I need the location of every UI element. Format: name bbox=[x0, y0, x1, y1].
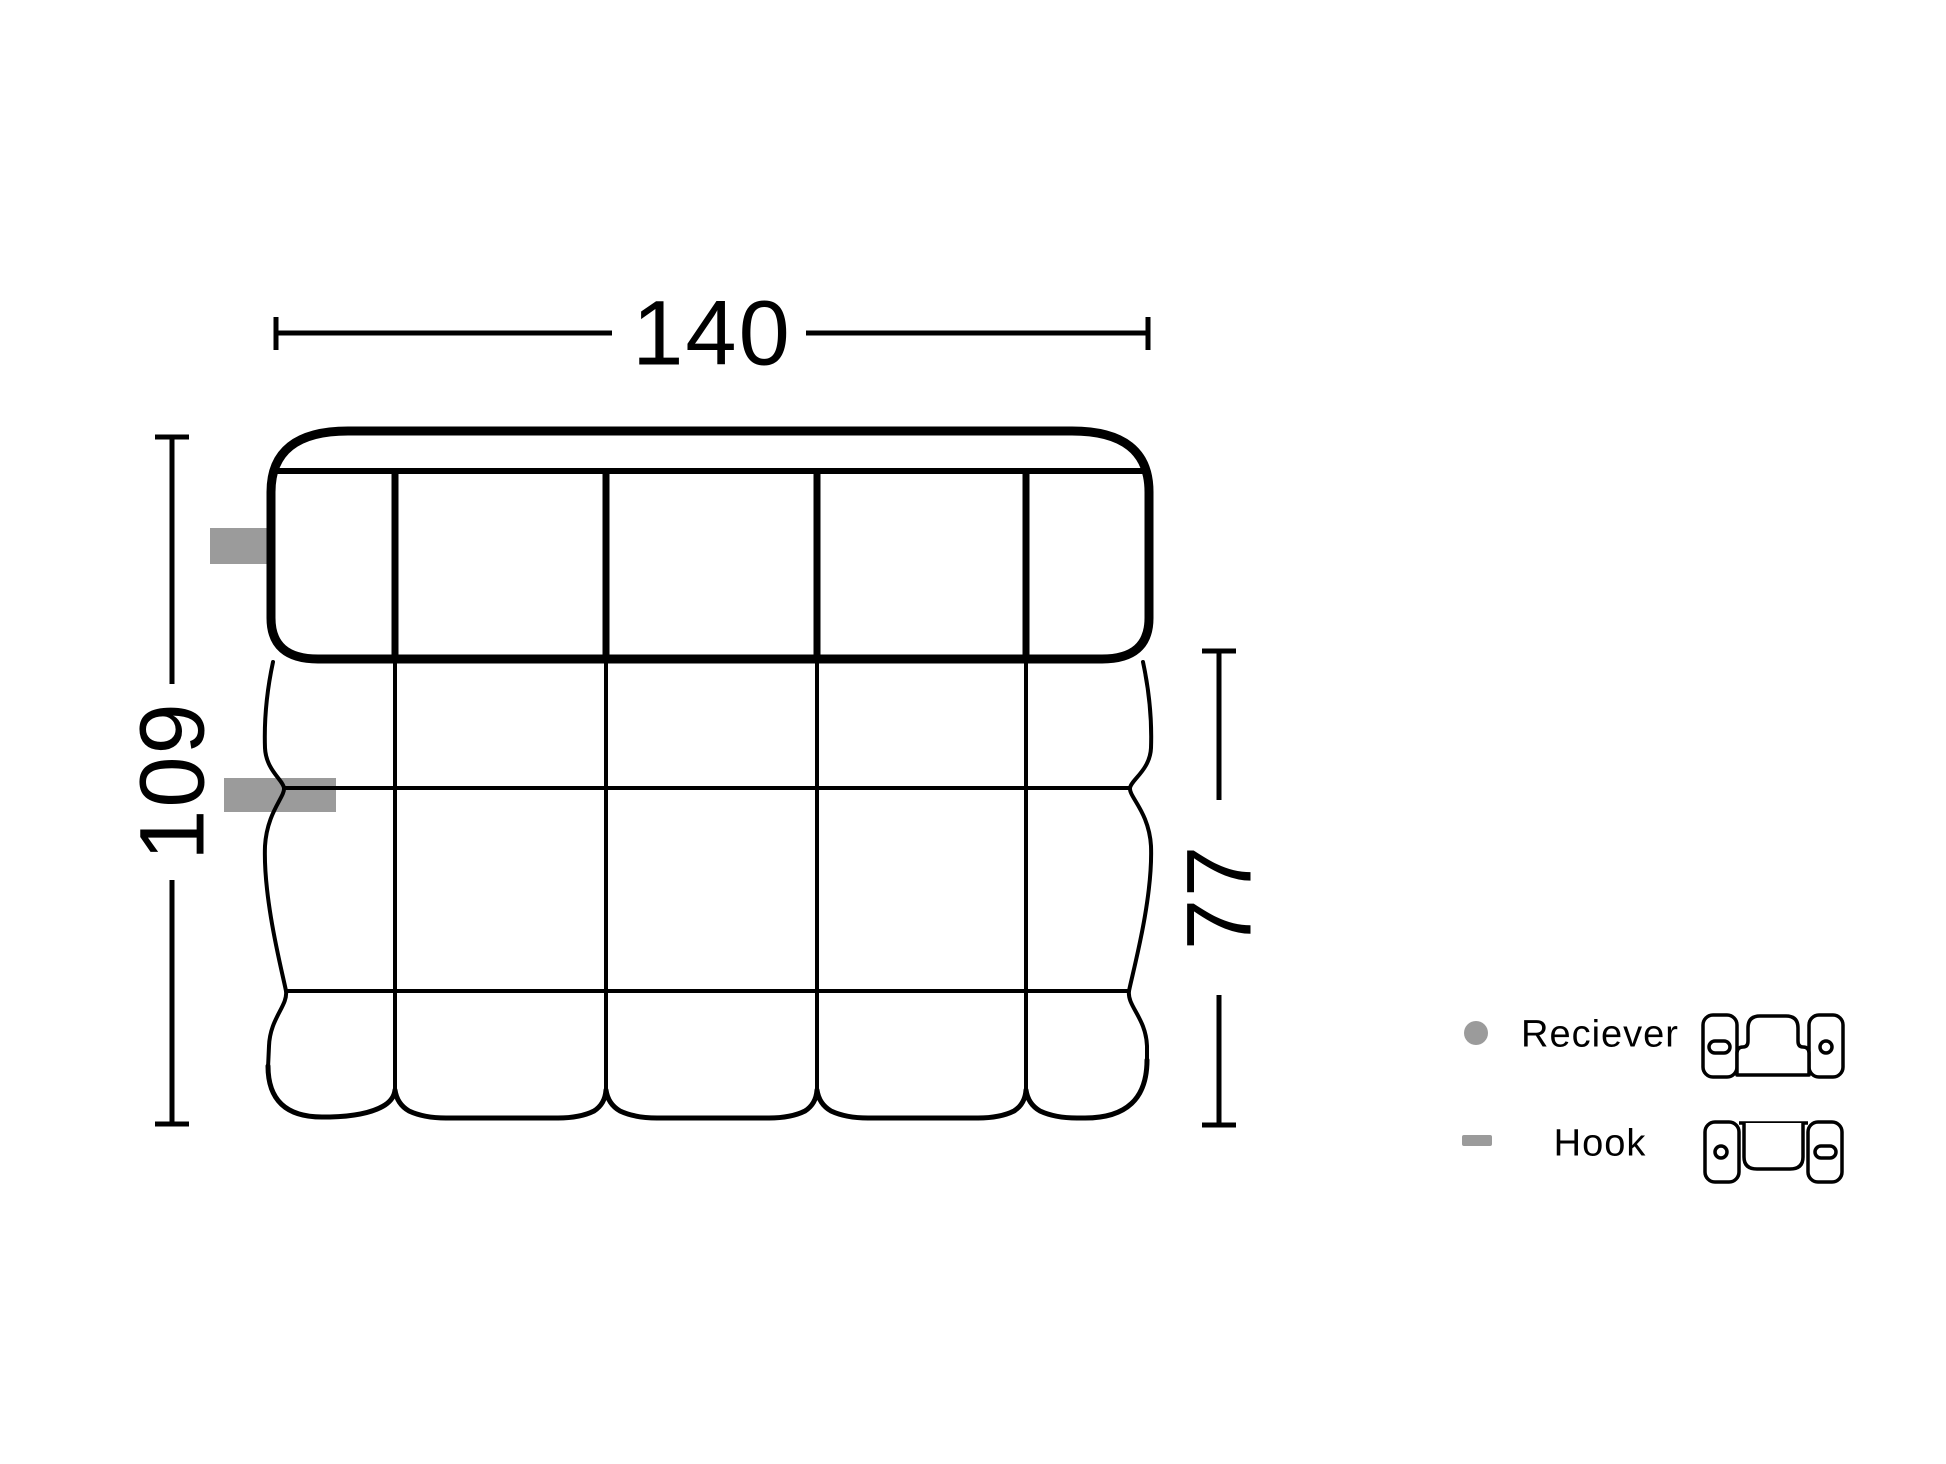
hook-label: Hook bbox=[1554, 1122, 1647, 1164]
seat-right-edge bbox=[1129, 662, 1151, 1062]
legend: Reciever Hook bbox=[1462, 1013, 1843, 1182]
sofa-top-view bbox=[265, 431, 1151, 1118]
sofa-dimension-drawing: 140 109 77 Reciever Hook bbox=[0, 0, 1946, 1464]
receiver-label: Reciever bbox=[1521, 1013, 1679, 1055]
dimension-diagram: 140 109 77 Reciever Hook bbox=[0, 0, 1946, 1464]
width-dimension-label: 140 bbox=[632, 282, 792, 384]
backrest-outline bbox=[271, 431, 1149, 659]
seat-depth-dimension-label: 77 bbox=[1168, 844, 1270, 950]
receiver-dot-marker bbox=[1464, 1021, 1488, 1045]
depth-dimension-label: 109 bbox=[121, 701, 223, 861]
seat-bottom-scallops bbox=[268, 1060, 1147, 1118]
hook-bracket-icon bbox=[1705, 1122, 1842, 1182]
hook-dash-marker bbox=[1462, 1135, 1492, 1146]
receiver-bracket-icon bbox=[1703, 1015, 1843, 1077]
seat-left-edge bbox=[265, 662, 286, 1068]
